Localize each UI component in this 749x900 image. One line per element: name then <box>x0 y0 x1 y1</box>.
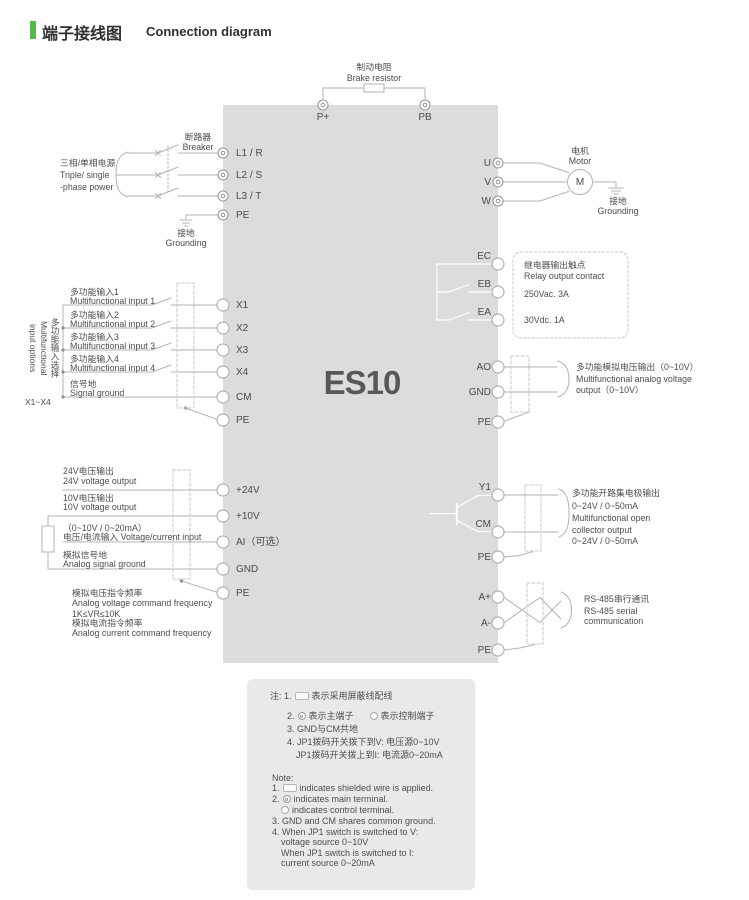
rs485-brace <box>561 592 572 628</box>
collector-brace <box>559 489 569 537</box>
control-terminal <box>217 484 229 496</box>
analog-output-brace <box>558 361 569 397</box>
terminal-l2s: L2 / S <box>236 170 262 181</box>
control-terminal <box>492 258 504 270</box>
note-en-2-num: 2. <box>272 794 280 804</box>
control-terminal <box>492 416 504 428</box>
terminal-eb: EB <box>478 279 491 290</box>
control-terminal <box>217 536 229 548</box>
control-terminal-icon <box>370 712 378 720</box>
terminal-ao: AO <box>477 362 491 373</box>
terminal-w: W <box>482 196 491 207</box>
main-terminal <box>318 100 328 110</box>
shielded-wire-icon <box>295 692 309 700</box>
shielded-wire-icon <box>283 784 297 792</box>
terminal-gnd-in: GND <box>236 564 258 575</box>
signal-ground-label-en: Signal ground <box>70 389 124 399</box>
terminal-u: U <box>484 158 491 169</box>
power-ground-symbol <box>180 215 218 226</box>
note-en-6-text: voltage source 0~10V <box>281 837 368 847</box>
control-terminal <box>492 314 504 326</box>
note-zh-5-text: JP1拨码开关拨上到I: 电流源0~20mA <box>296 750 443 760</box>
terminal-x2: X2 <box>236 323 248 334</box>
terminal-p-plus: P+ <box>317 112 330 123</box>
motor-grounding-label-en: Grounding <box>597 207 638 217</box>
control-terminal <box>492 361 504 373</box>
power-grounding-label-en: Grounding <box>165 239 206 249</box>
control-terminal <box>217 563 229 575</box>
note-line-zh-5: JP1拨码开关拨上到I: 电流源0~20mA <box>296 750 443 760</box>
control-terminal <box>217 299 229 311</box>
brake-resistor-label-en: Brake resistor <box>347 74 401 84</box>
main-terminal <box>493 177 503 187</box>
terminal-pe-input: PE <box>236 415 249 426</box>
terminal-ea: EA <box>478 307 491 318</box>
rs485-twisted-pair <box>504 597 562 650</box>
input1-label-en: Multifunctional input 1 <box>70 297 155 307</box>
note-line-zh-3: 3. GND与CM共地 <box>287 724 358 734</box>
motor-wires <box>504 163 569 201</box>
note-en-5-text: 4. When JP1 switch is switched to V: <box>272 827 418 837</box>
collector-wires <box>504 495 559 557</box>
relay-rating-ac: 250Vac. 3A <box>524 290 569 300</box>
main-terminal <box>218 148 228 158</box>
device-model-label: ES10 <box>324 364 401 402</box>
note-line-en-7: When JP1 switch is switched to I: <box>281 848 414 858</box>
analog-ground-label-en: Analog signal ground <box>63 560 146 570</box>
control-terminal <box>492 526 504 538</box>
control-terminal <box>217 587 229 599</box>
terminal-l1r: L1 / R <box>236 148 263 159</box>
control-terminal <box>492 489 504 501</box>
terminal-v: V <box>484 177 491 188</box>
control-terminal <box>492 551 504 563</box>
note-line-en-8: current source 0~20mA <box>281 858 375 868</box>
note-en-4-text: 3. GND and CM shares common ground. <box>272 816 436 826</box>
motor-symbol-letter: M <box>576 177 584 188</box>
note-line-en-1: 1. indicates shielded wire is applied. <box>272 783 433 793</box>
terminal-10v: +10V <box>236 511 260 522</box>
terminal-x4: X4 <box>236 367 248 378</box>
note-zh-2-text: 表示主端子 <box>309 711 354 721</box>
note-en-1-num: 1. <box>272 783 280 793</box>
breaker-switch-group <box>116 145 218 199</box>
title-accent-bar <box>30 21 36 39</box>
brake-resistor-label-zh: 制动电阻 <box>356 63 391 73</box>
analog-output-label-en2: output（0~10V） <box>576 386 644 396</box>
note-en-2-text: indicates main terminal. <box>294 794 389 804</box>
ai-label: 电压/电流输入 Voltage/current input <box>63 533 201 543</box>
analog-output-label-zh: 多功能模拟电压输出（0~10V） <box>576 363 698 373</box>
note-line-en-3: indicates control terminal. <box>281 805 394 815</box>
main-terminal <box>218 170 228 180</box>
note-title-en: Note: <box>272 773 294 783</box>
note-zh-4-text: 4. JP1拨码开关拨下到V: 电压源0~10V <box>287 737 439 747</box>
rs485-label-1: RS-485串行通讯 <box>584 595 649 605</box>
main-terminal <box>493 196 503 206</box>
note-line-en-4: 3. GND and CM shares common ground. <box>272 816 436 826</box>
page-title-en: Connection diagram <box>146 24 272 39</box>
power-source-label-en2: -phase power <box>60 183 113 193</box>
24v-label-en: 24V voltage output <box>63 477 136 487</box>
connection-diagram-page: 端子接线图 Connection diagram ES10 制动电阻 Brake… <box>0 0 749 900</box>
collector-label-5: 0~24V / 0~50mA <box>572 537 638 547</box>
note-line-en-6: voltage source 0~10V <box>281 837 368 847</box>
terminal-pe-analog: PE <box>236 588 249 599</box>
input3-label-en: Multifunctional input 3 <box>70 342 155 352</box>
note-zh-2-num: 2. <box>287 711 295 721</box>
control-terminal <box>217 414 229 426</box>
main-terminal-icon <box>298 712 306 720</box>
note-line-en-2: 2. indicates main terminal. <box>272 794 388 804</box>
note-line-zh-1: 注: 1. 表示采用屏蔽线配线 <box>270 691 393 701</box>
terminal-a-plus: A+ <box>478 592 491 603</box>
note-line-en-5: 4. When JP1 switch is switched to V: <box>272 827 418 837</box>
terminal-24v: +24V <box>236 485 260 496</box>
analog-output-shield-box <box>511 356 529 412</box>
terminal-x1: X1 <box>236 300 248 311</box>
input4-label-en: Multifunctional input 4 <box>70 364 155 374</box>
power-source-label-en1: Triple/ single <box>60 171 110 181</box>
main-terminal-icon <box>283 795 291 803</box>
page-title-zh: 端子接线图 <box>42 20 122 44</box>
terminal-pe-out: PE <box>478 417 491 428</box>
note-zh-3-text: 3. GND与CM共地 <box>287 724 358 734</box>
note-zh-1-num: 注: 1. <box>270 691 292 701</box>
terminal-ai: AI（可选） <box>236 537 285 548</box>
relay-label-zh: 继电器输出触点 <box>524 261 586 271</box>
terminal-y1: Y1 <box>479 482 491 493</box>
note-zh-1-text: 表示采用屏蔽线配线 <box>312 691 393 701</box>
main-terminal <box>218 191 228 201</box>
collector-label-4: collector output <box>572 526 632 536</box>
control-terminal <box>217 344 229 356</box>
potentiometer-symbol <box>42 526 54 552</box>
10v-label-en: 10V voltage output <box>63 503 136 513</box>
analog-shield-box <box>173 470 190 579</box>
freq-label-2: Analog voltage command frequency <box>72 599 212 609</box>
motor-label-en: Motor <box>569 157 592 167</box>
control-terminal <box>217 366 229 378</box>
main-terminal <box>420 100 430 110</box>
notes-box: 注: 1. 表示采用屏蔽线配线 2. 表示主端子 表示控制端子 3. GND与C… <box>247 679 475 890</box>
relay-rating-dc: 30Vdc. 1A <box>524 316 565 326</box>
input-range-label: X1~X4 <box>25 398 51 408</box>
main-terminal <box>493 158 503 168</box>
input-options-vertical-label: 多功能输入选择 Multifunctional input options <box>27 297 60 399</box>
note-line-zh-4: 4. JP1拨码开关拨下到V: 电压源0~10V <box>287 737 439 747</box>
note-en-8-text: current source 0~20mA <box>281 858 375 868</box>
control-terminal <box>217 322 229 334</box>
collector-label-2: 0~24V / 0~50mA <box>572 502 638 512</box>
note-en-title-text: Note: <box>272 773 294 783</box>
analog-output-label-en1: Multifunctional analog voltage <box>576 375 692 385</box>
terminal-a-minus: A- <box>481 618 491 629</box>
control-terminal <box>492 617 504 629</box>
terminal-ec: EC <box>477 251 491 262</box>
motor-ground-symbol <box>593 182 624 194</box>
freq-label-5: Analog current command frequency <box>72 629 211 639</box>
terminal-x3: X3 <box>236 345 248 356</box>
brake-resistor-symbol <box>323 84 425 99</box>
control-terminal <box>217 510 229 522</box>
input2-label-en: Multifunctional input 2 <box>70 320 155 330</box>
terminal-pe-collector: PE <box>478 552 491 563</box>
rs485-shield-box <box>527 583 543 644</box>
relay-label-en: Relay output contact <box>524 272 604 282</box>
collector-label-1: 多功能开路集电极输出 <box>572 489 660 499</box>
terminal-pe-rs485: PE <box>478 645 491 656</box>
control-terminal <box>492 386 504 398</box>
terminal-cm-input: CM <box>236 392 252 403</box>
analog-output-wires <box>504 367 558 422</box>
note-en-7-text: When JP1 switch is switched to I: <box>281 848 414 858</box>
input-shield-box <box>177 283 194 408</box>
main-terminal <box>218 210 228 220</box>
terminal-cm-collector: CM <box>475 519 491 530</box>
note-en-1-text: indicates shielded wire is applied. <box>300 783 434 793</box>
control-terminal <box>217 391 229 403</box>
terminal-l3t: L3 / T <box>236 191 261 202</box>
terminal-pb: PB <box>418 112 431 123</box>
terminal-gnd-out: GND <box>469 387 491 398</box>
note-en-3-text: indicates control terminal. <box>292 805 394 815</box>
control-terminal <box>492 644 504 656</box>
control-terminal-icon <box>281 806 289 814</box>
terminal-pe-power: PE <box>236 210 249 221</box>
breaker-label-en: Breaker <box>183 143 214 153</box>
control-terminal <box>492 286 504 298</box>
power-source-label-zh: 三相/单相电源 <box>60 159 115 169</box>
note-zh-2-text2: 表示控制端子 <box>381 711 435 721</box>
note-line-zh-2: 2. 表示主端子 表示控制端子 <box>287 711 435 721</box>
collector-label-3: Multifunctional open <box>572 514 650 524</box>
rs485-label-3: communication <box>584 617 643 627</box>
control-terminal <box>492 591 504 603</box>
